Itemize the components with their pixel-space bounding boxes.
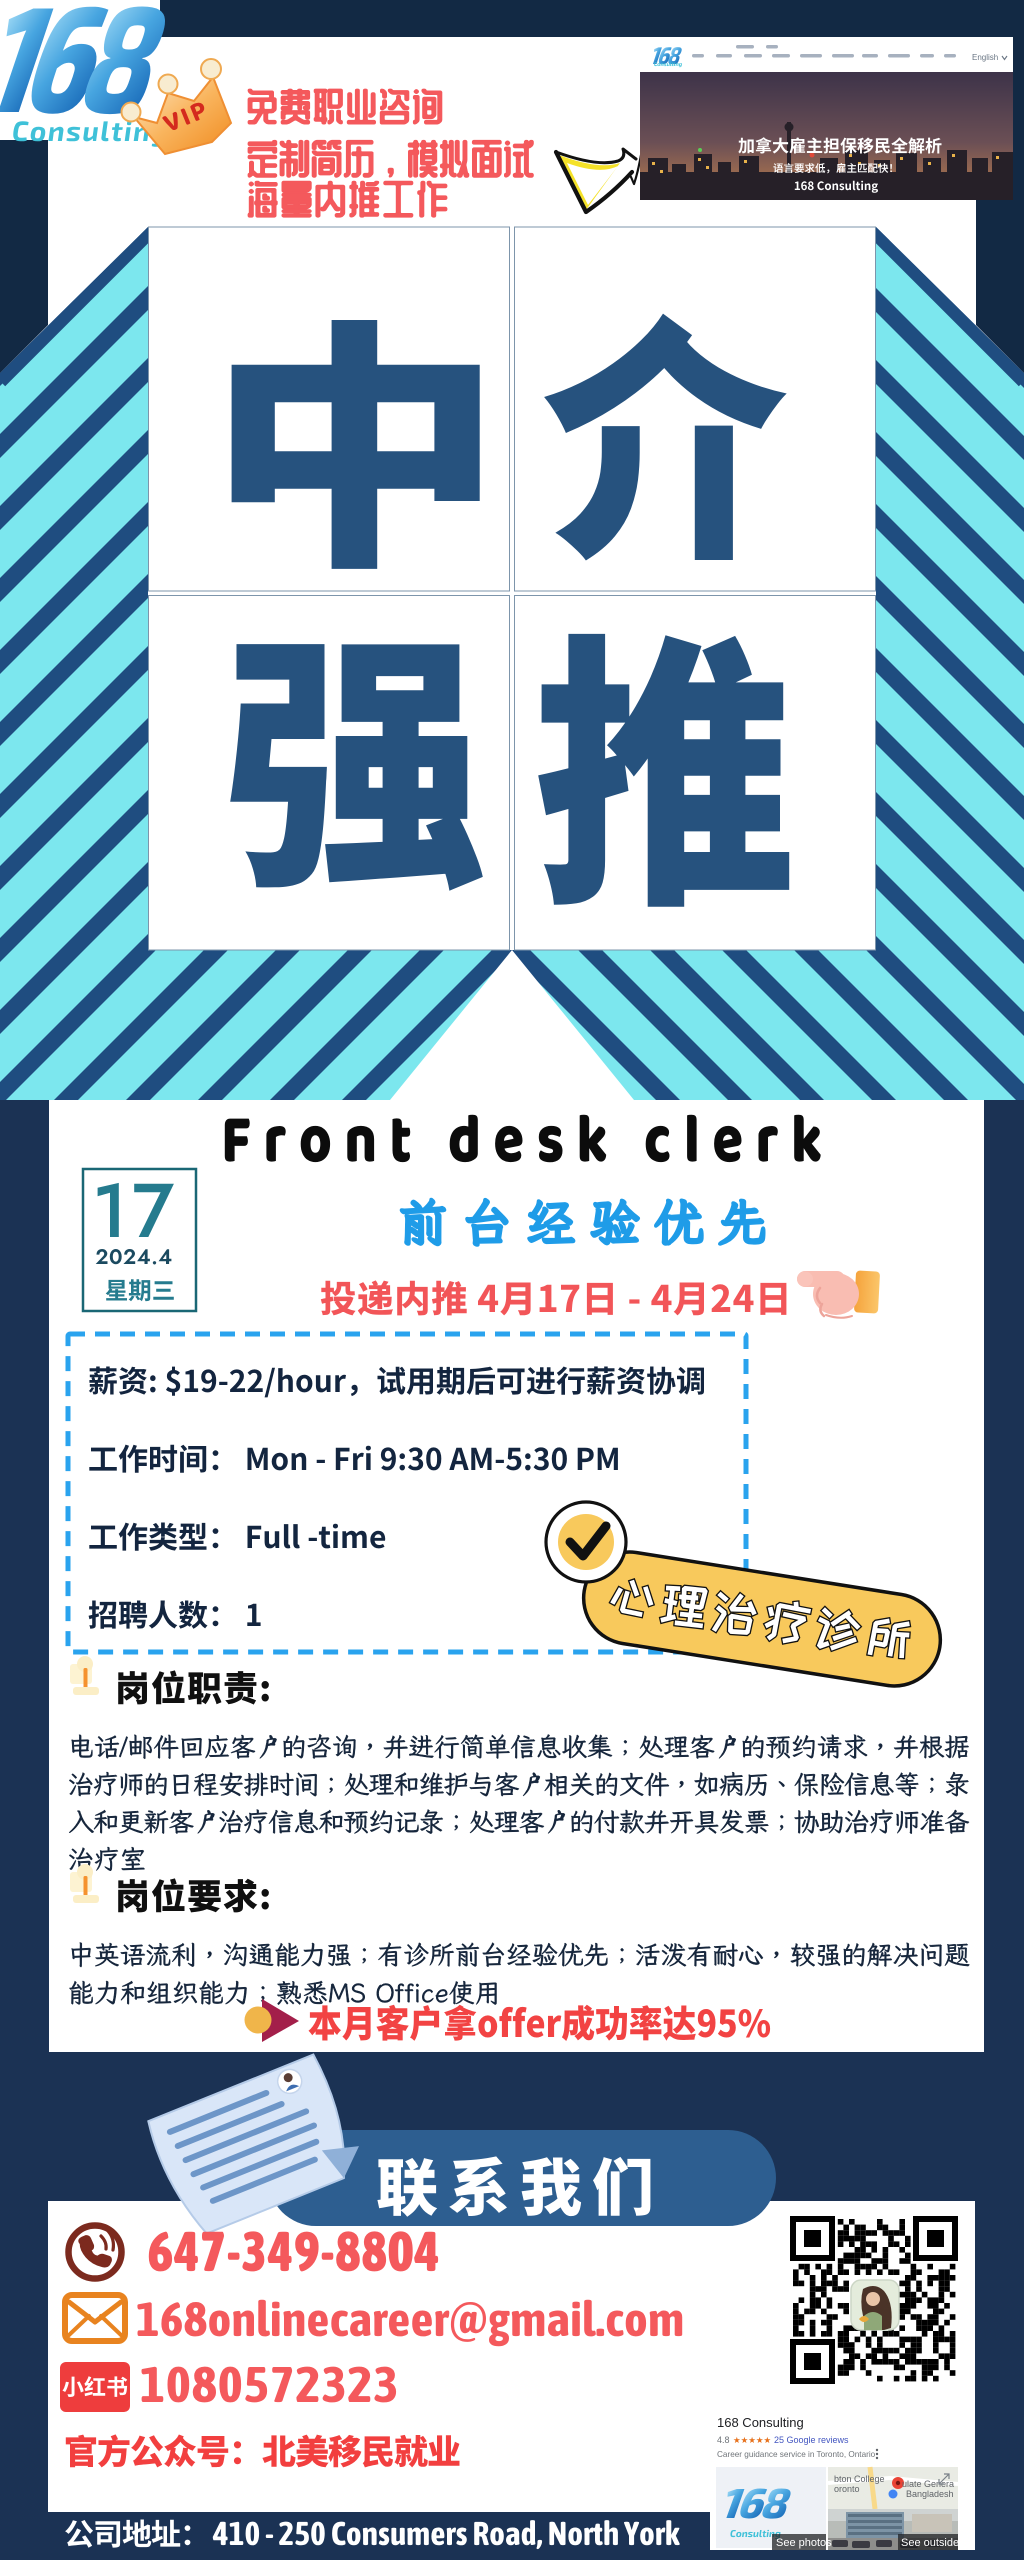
svg-text:oronto: oronto [834,2484,860,2494]
svg-text:25 Google reviews: 25 Google reviews [774,2435,849,2445]
svg-text:English: English [972,53,998,62]
svg-text:4.8: 4.8 [717,2435,730,2445]
svg-text:ulate Genera: ulate Genera [902,2479,954,2489]
svg-text:Bangladesh: Bangladesh [906,2489,954,2499]
svg-text:See photos: See photos [776,2537,832,2549]
svg-text:168 Consulting: 168 Consulting [717,2415,804,2430]
svg-text:★★★★★: ★★★★★ [733,2435,771,2445]
svg-text:bton College: bton College [834,2474,885,2484]
svg-text:See outside: See outside [901,2537,959,2549]
svg-text:Career guidance service in Tor: Career guidance service in Toronto, Onta… [717,2450,876,2459]
